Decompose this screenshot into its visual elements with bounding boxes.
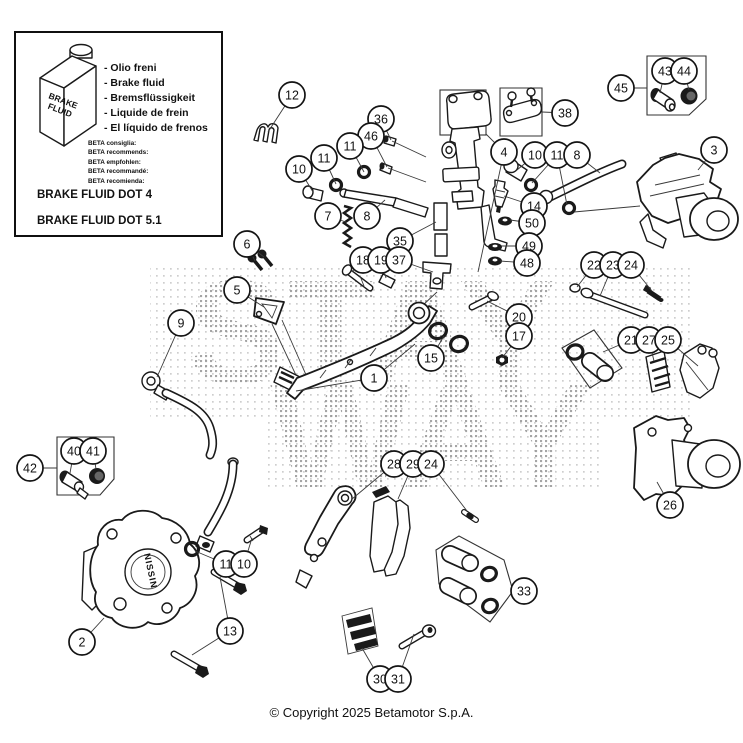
callout-number: 43 bbox=[658, 65, 672, 79]
callout-26[interactable]: 26 bbox=[657, 482, 683, 518]
callout-28[interactable]: 28 bbox=[352, 451, 407, 499]
callout-number: 48 bbox=[520, 257, 534, 271]
callout-11[interactable]: 11 bbox=[311, 145, 337, 184]
callout-number: 40 bbox=[67, 445, 81, 459]
callout-number: 41 bbox=[86, 445, 100, 459]
callout-8[interactable]: 8 bbox=[354, 200, 385, 229]
callout-number: 46 bbox=[364, 130, 378, 144]
callout-number: 4 bbox=[501, 146, 508, 160]
callout-number: 22 bbox=[587, 259, 601, 273]
callout-number: 15 bbox=[424, 352, 438, 366]
leader-line bbox=[478, 152, 504, 272]
callout-24[interactable]: 24 bbox=[418, 451, 467, 511]
callout-10[interactable]: 10 bbox=[231, 538, 257, 577]
callout-number: 1 bbox=[371, 372, 378, 386]
callout-number: 13 bbox=[223, 625, 237, 639]
callout-3[interactable]: 3 bbox=[698, 137, 727, 170]
callout-11[interactable]: 11 bbox=[337, 133, 364, 172]
callout-number: 11 bbox=[344, 140, 357, 154]
callout-number: 44 bbox=[677, 65, 691, 79]
callout-number: 7 bbox=[325, 210, 332, 224]
callout-number: 28 bbox=[387, 458, 401, 472]
callout-number: 6 bbox=[244, 238, 251, 252]
callout-41[interactable]: 41 bbox=[80, 438, 106, 469]
callout-number: 50 bbox=[525, 217, 539, 231]
callout-number: 2 bbox=[79, 636, 86, 650]
callout-4[interactable]: 4 bbox=[478, 134, 517, 272]
callout-24[interactable]: 24 bbox=[618, 252, 652, 291]
callout-number: 27 bbox=[642, 334, 656, 348]
callout-9[interactable]: 9 bbox=[157, 310, 194, 377]
callout-12[interactable]: 12 bbox=[268, 82, 305, 132]
callout-number: 10 bbox=[528, 149, 542, 163]
callout-1[interactable]: 1 bbox=[296, 344, 415, 391]
callout-5[interactable]: 5 bbox=[224, 277, 264, 307]
callout-number: 3 bbox=[711, 144, 718, 158]
callout-10[interactable]: 10 bbox=[286, 156, 313, 192]
callout-number: 33 bbox=[517, 585, 531, 599]
callout-number: 31 bbox=[391, 673, 405, 687]
callout-number: 12 bbox=[285, 89, 299, 103]
callout-number: 45 bbox=[614, 82, 628, 96]
callout-number: 8 bbox=[364, 210, 371, 224]
callout-number: 11 bbox=[551, 149, 564, 163]
callout-45[interactable]: 45 bbox=[608, 75, 647, 101]
callout-13[interactable]: 13 bbox=[192, 577, 243, 655]
callout-number: 10 bbox=[292, 163, 306, 177]
callout-number: 42 bbox=[23, 462, 37, 476]
callout-number: 25 bbox=[661, 334, 675, 348]
callout-number: 37 bbox=[392, 254, 406, 268]
callout-number: 5 bbox=[234, 284, 241, 298]
callout-15[interactable]: 15 bbox=[418, 336, 444, 371]
callout-25[interactable]: 25 bbox=[655, 327, 698, 366]
callout-7[interactable]: 7 bbox=[315, 203, 346, 229]
callout-50[interactable]: 50 bbox=[510, 210, 545, 236]
parts-diagram-page: STAY WAY BRAKE FLUID bbox=[0, 0, 743, 743]
callout-number: 24 bbox=[624, 259, 638, 273]
callout-44[interactable]: 44 bbox=[671, 58, 697, 90]
callout-layer: 1236461111107835181937384101183454344145… bbox=[0, 0, 743, 743]
callout-38[interactable]: 38 bbox=[542, 100, 578, 126]
callout-17[interactable]: 17 bbox=[502, 323, 532, 358]
callout-33[interactable]: 33 bbox=[511, 578, 537, 604]
callout-number: 24 bbox=[424, 458, 438, 472]
callout-48[interactable]: 48 bbox=[500, 250, 540, 276]
callout-number: 8 bbox=[574, 149, 581, 163]
callout-number: 10 bbox=[237, 558, 251, 572]
callout-2[interactable]: 2 bbox=[69, 618, 104, 655]
callout-8[interactable]: 8 bbox=[564, 142, 600, 173]
callout-number: 17 bbox=[512, 330, 526, 344]
callout-6[interactable]: 6 bbox=[234, 231, 264, 261]
callout-number: 9 bbox=[178, 317, 185, 331]
callout-number: 26 bbox=[663, 499, 677, 513]
callout-31[interactable]: 31 bbox=[385, 634, 414, 692]
callout-42[interactable]: 42 bbox=[17, 455, 57, 481]
callout-number: 38 bbox=[558, 107, 572, 121]
callout-number: 11 bbox=[318, 152, 331, 166]
